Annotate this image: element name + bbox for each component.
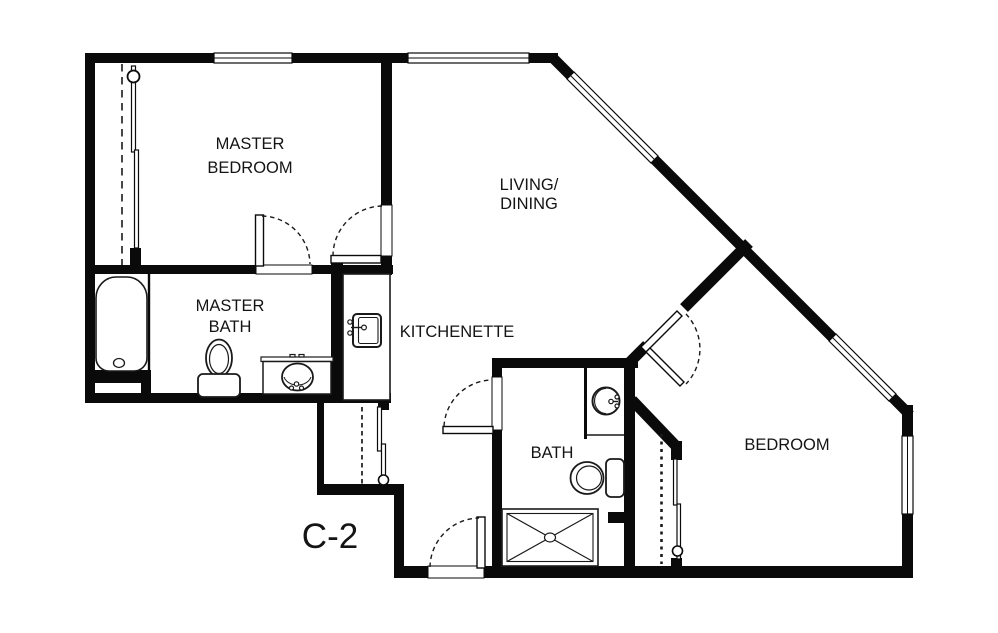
svg-text:LIVING/: LIVING/ (500, 176, 559, 194)
svg-text:BATH: BATH (209, 318, 252, 336)
svg-text:BATH: BATH (531, 444, 574, 462)
svg-text:MASTER: MASTER (216, 135, 285, 153)
svg-text:C-2: C-2 (302, 517, 358, 556)
svg-text:KITCHENETTE: KITCHENETTE (400, 323, 515, 341)
svg-text:BEDROOM: BEDROOM (207, 159, 292, 177)
svg-text:BEDROOM: BEDROOM (744, 436, 829, 454)
svg-text:DINING: DINING (500, 195, 558, 213)
svg-text:MASTER: MASTER (196, 297, 265, 315)
